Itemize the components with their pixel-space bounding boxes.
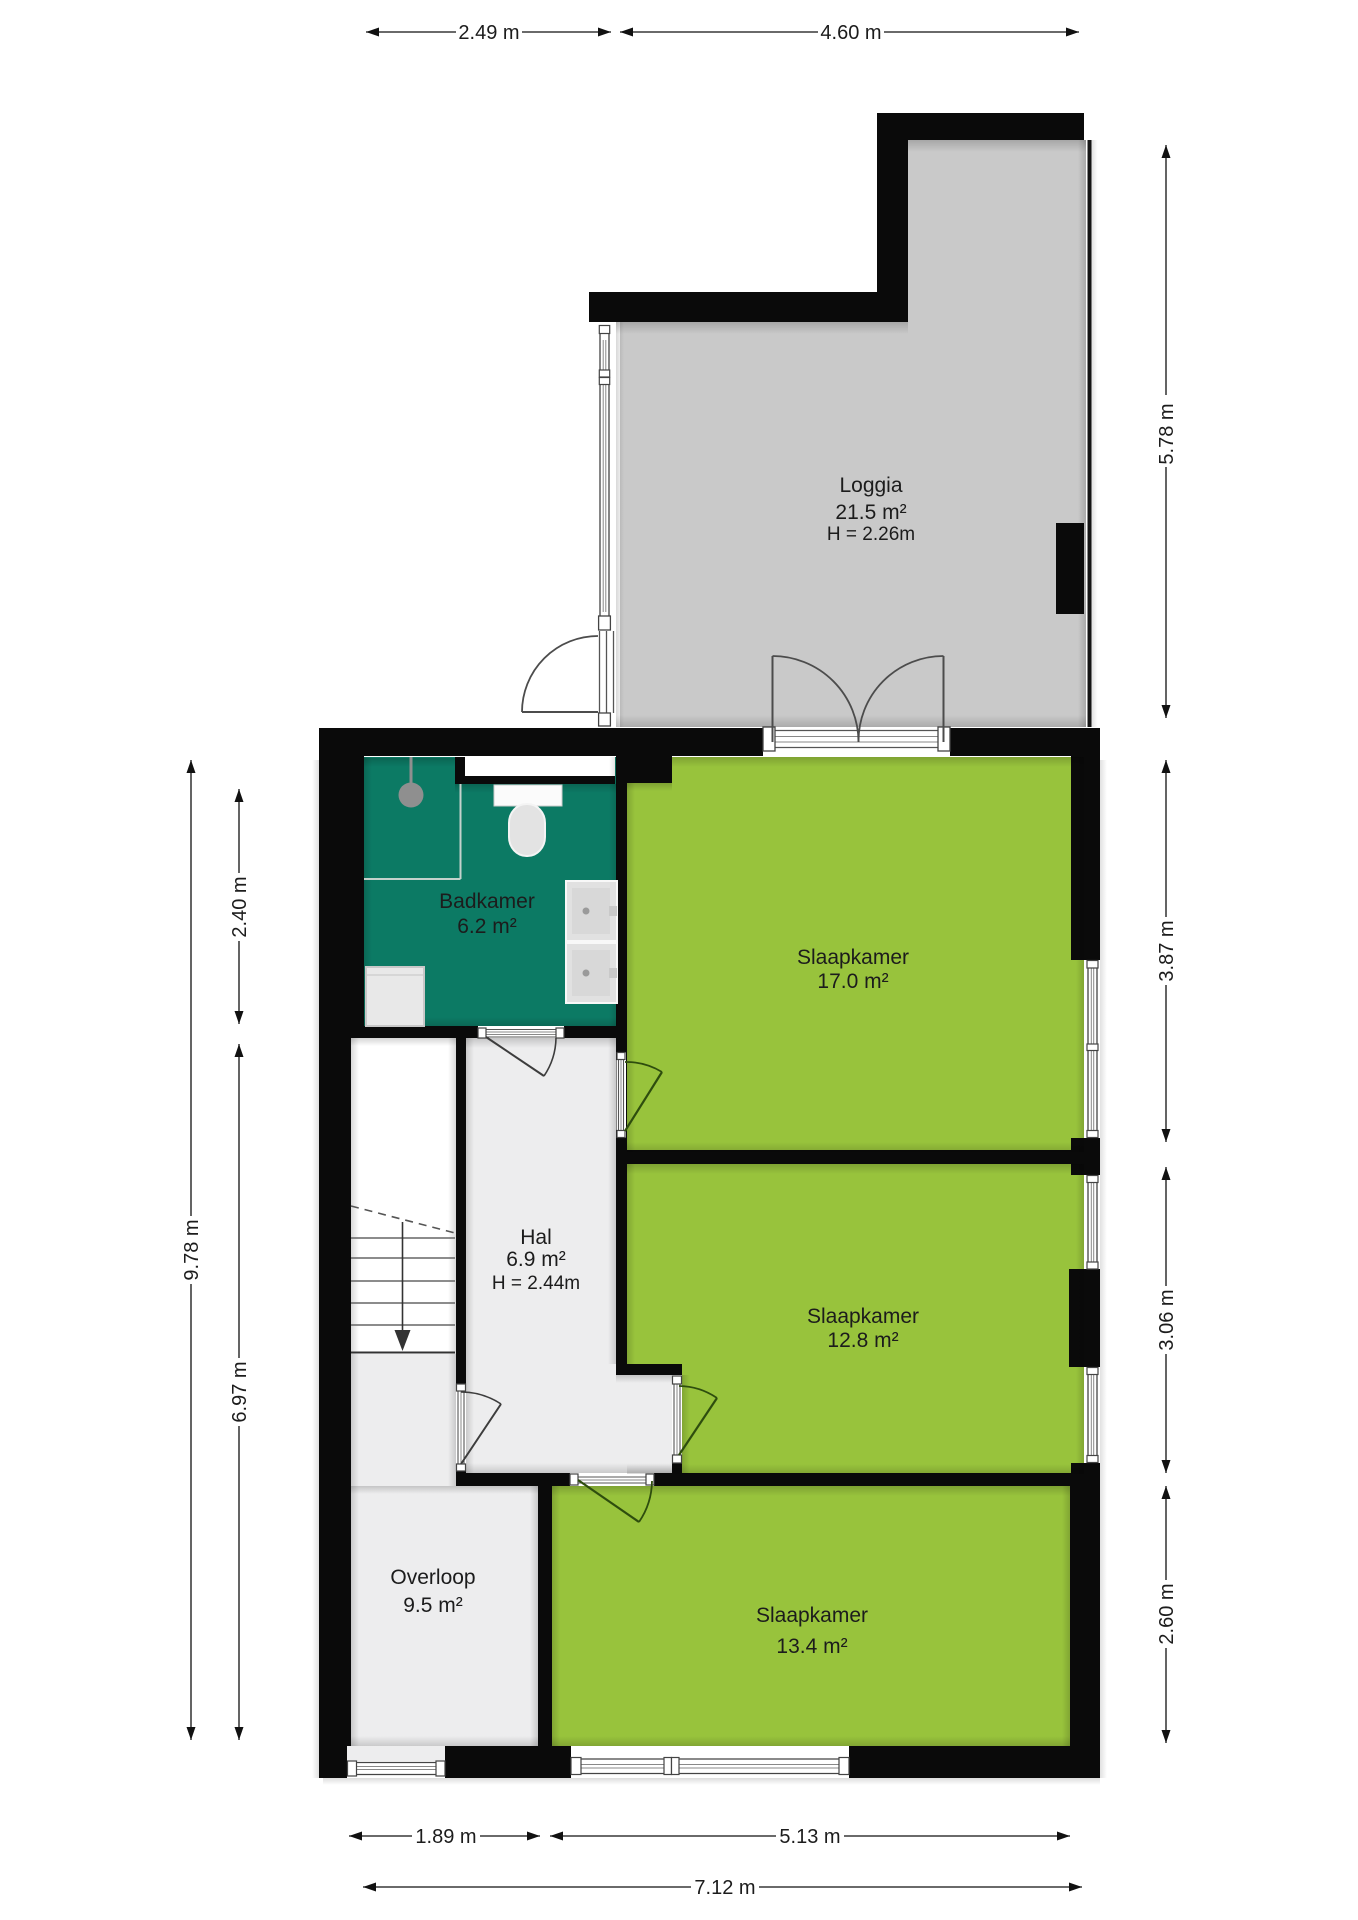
svg-text:9.5 m²: 9.5 m² <box>403 1594 463 1617</box>
svg-text:2.60 m: 2.60 m <box>1156 1583 1178 1644</box>
svg-text:13.4 m²: 13.4 m² <box>776 1635 847 1658</box>
svg-text:3.06 m: 3.06 m <box>1156 1289 1178 1350</box>
svg-text:Slaapkamer: Slaapkamer <box>756 1604 868 1627</box>
svg-text:4.60 m: 4.60 m <box>820 22 881 44</box>
svg-text:H = 2.26m: H = 2.26m <box>827 524 915 545</box>
svg-text:9.78 m: 9.78 m <box>181 1219 203 1280</box>
svg-text:12.8 m²: 12.8 m² <box>827 1329 898 1352</box>
svg-text:6.9 m²: 6.9 m² <box>506 1248 566 1271</box>
svg-text:H = 2.44m: H = 2.44m <box>492 1273 580 1294</box>
svg-text:Slaapkamer: Slaapkamer <box>797 946 909 969</box>
svg-text:17.0 m²: 17.0 m² <box>817 970 888 993</box>
svg-text:6.97 m: 6.97 m <box>229 1361 251 1422</box>
svg-text:5.13 m: 5.13 m <box>779 1826 840 1848</box>
svg-text:Slaapkamer: Slaapkamer <box>807 1305 919 1328</box>
svg-text:Hal: Hal <box>520 1226 552 1249</box>
svg-text:6.2 m²: 6.2 m² <box>457 915 517 938</box>
svg-text:2.49 m: 2.49 m <box>458 22 519 44</box>
svg-text:2.40 m: 2.40 m <box>229 876 251 937</box>
svg-text:Loggia: Loggia <box>839 474 902 497</box>
svg-text:1.89 m: 1.89 m <box>415 1826 476 1848</box>
svg-text:Badkamer: Badkamer <box>439 890 535 913</box>
svg-text:3.87 m: 3.87 m <box>1156 920 1178 981</box>
svg-text:21.5 m²: 21.5 m² <box>835 501 906 524</box>
svg-text:5.78 m: 5.78 m <box>1156 403 1178 464</box>
svg-text:Overloop: Overloop <box>390 1566 475 1589</box>
svg-text:7.12 m: 7.12 m <box>694 1877 755 1899</box>
